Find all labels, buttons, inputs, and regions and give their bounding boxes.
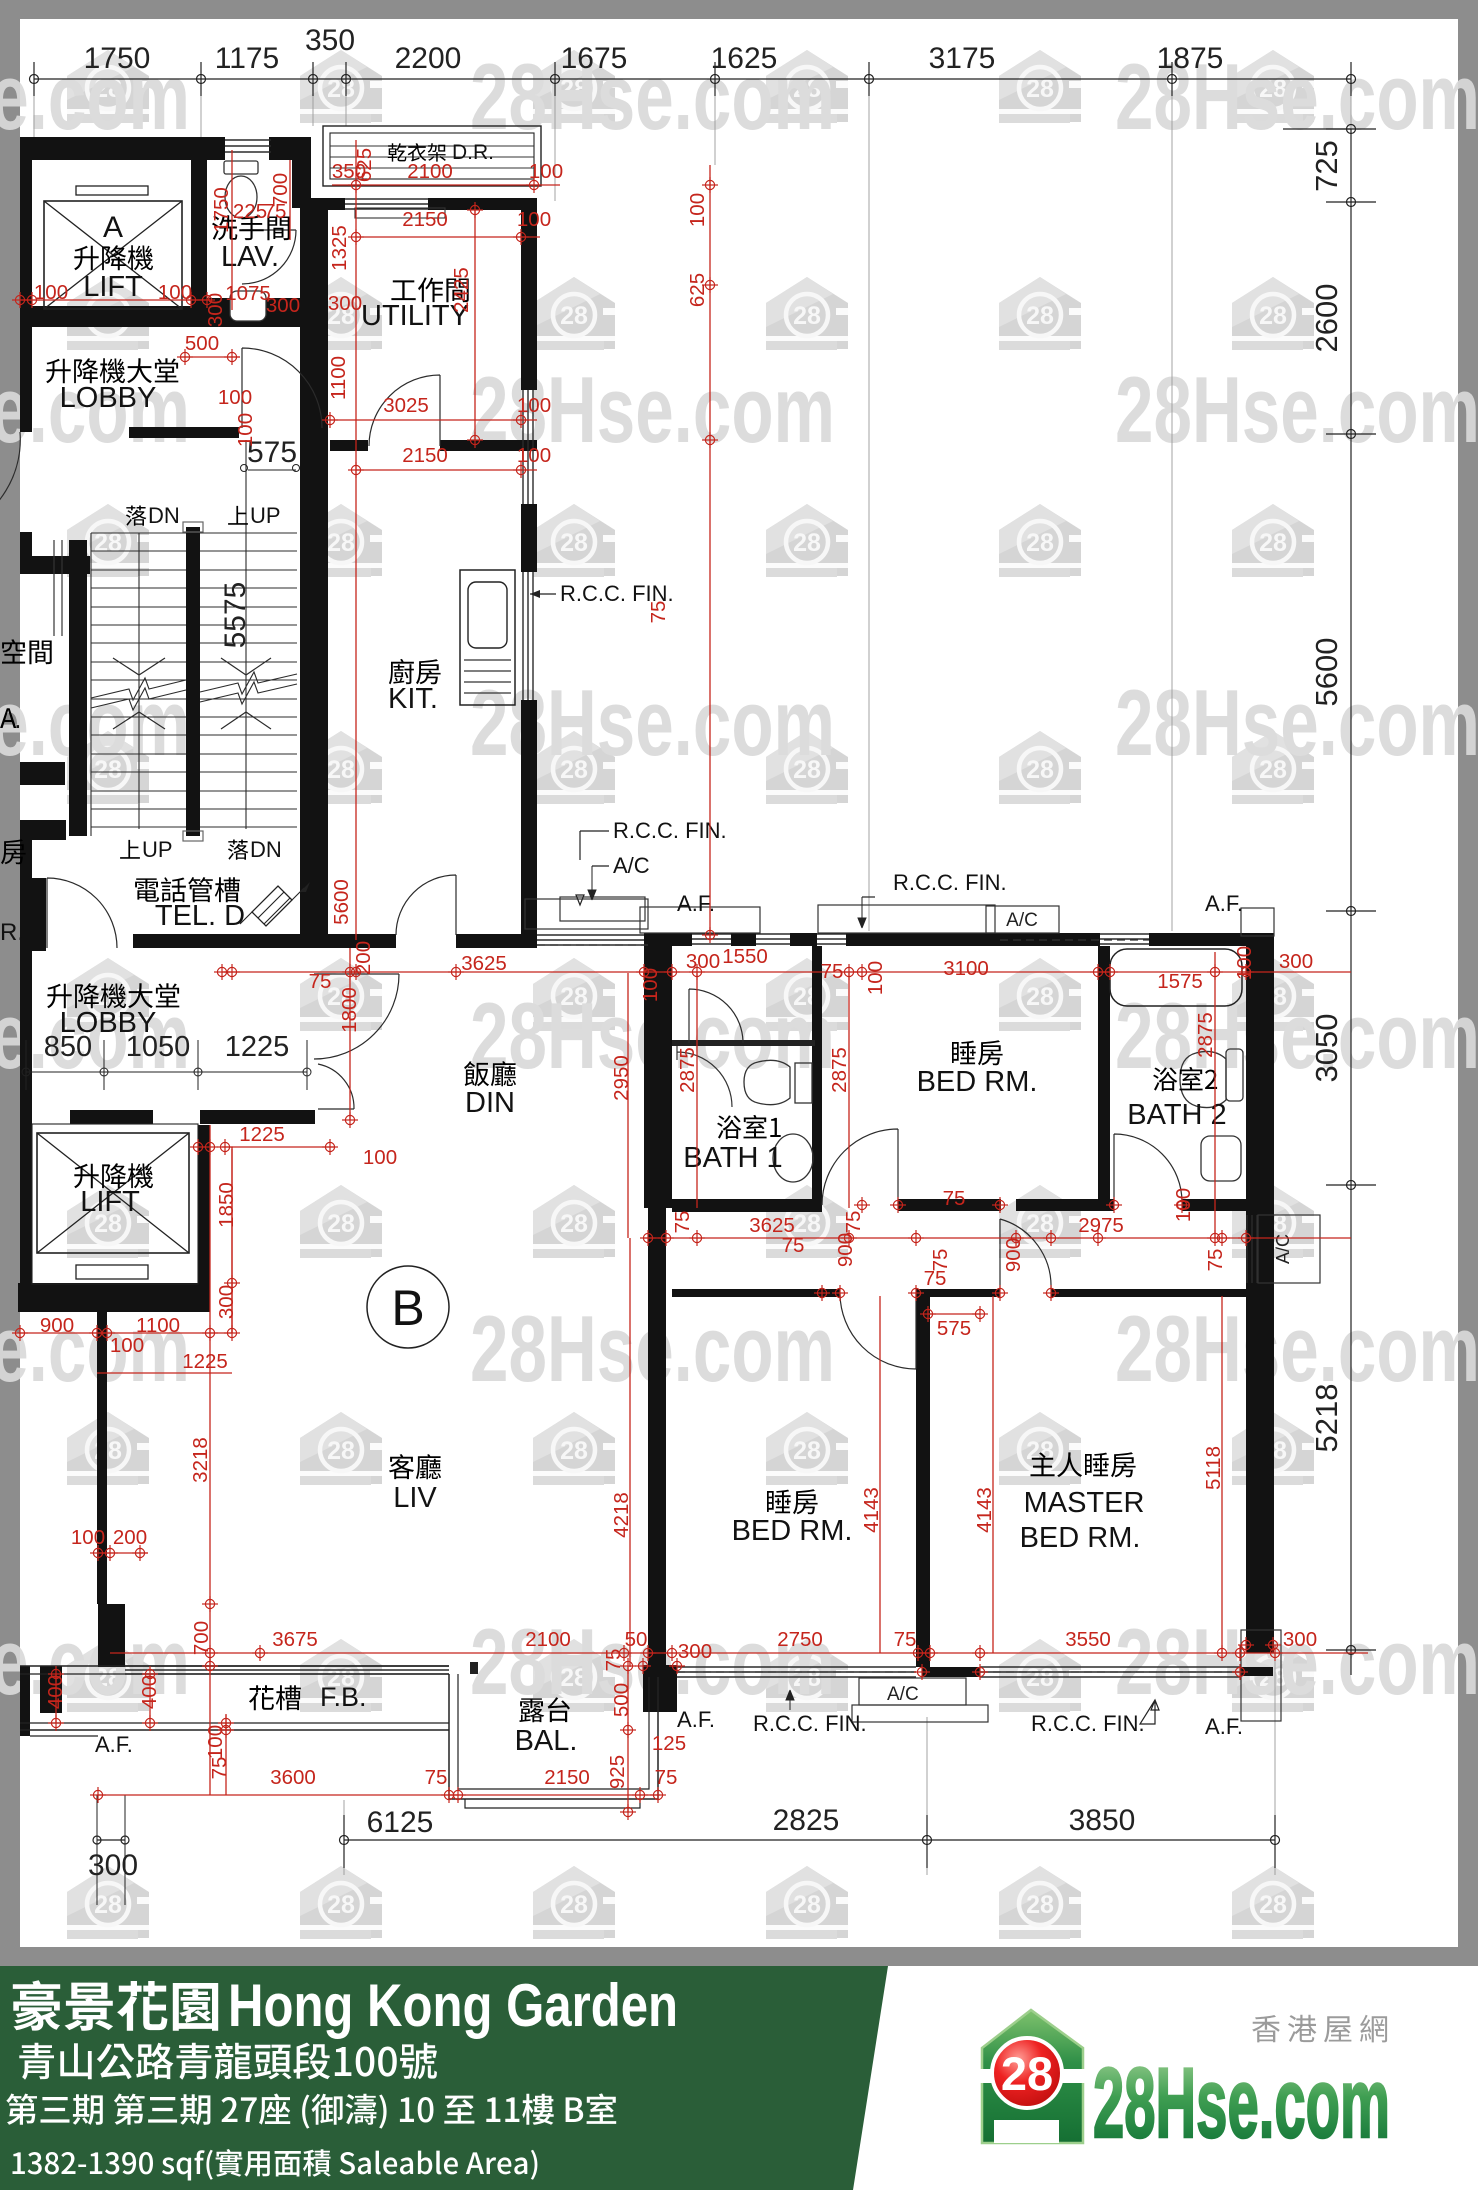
svg-text:100: 100	[234, 413, 257, 447]
svg-text:100: 100	[1172, 1188, 1195, 1222]
svg-text:300: 300	[328, 292, 362, 315]
svg-text:1625: 1625	[711, 42, 778, 75]
svg-text:100: 100	[639, 968, 662, 1002]
svg-text:A.F.: A.F.	[1205, 891, 1243, 916]
svg-text:28: 28	[1001, 2047, 1053, 2100]
svg-text:3218: 3218	[189, 1437, 212, 1483]
svg-text:6125: 6125	[367, 1806, 434, 1839]
svg-text:100: 100	[529, 160, 563, 183]
svg-text:75: 75	[655, 1766, 678, 1789]
svg-text:1175: 1175	[215, 42, 280, 75]
svg-text:A/C: A/C	[887, 1684, 919, 1705]
svg-text:A.F.: A.F.	[95, 1732, 133, 1757]
svg-text:75: 75	[425, 1766, 448, 1789]
svg-text:75: 75	[602, 1649, 625, 1672]
svg-text:3100: 3100	[943, 957, 989, 980]
svg-text:625: 625	[686, 273, 709, 307]
svg-text:900: 900	[40, 1314, 74, 1337]
svg-text:400: 400	[44, 1675, 67, 1709]
svg-text:625: 625	[353, 148, 376, 182]
svg-text:4218: 4218	[610, 1492, 633, 1538]
svg-text:75: 75	[671, 1211, 694, 1234]
svg-text:1075: 1075	[225, 282, 271, 305]
svg-text:LAV.: LAV.	[221, 241, 279, 273]
svg-text:1875: 1875	[1157, 42, 1224, 75]
svg-text:.: .	[14, 704, 22, 734]
svg-text:D.R.: D.R.	[452, 141, 494, 164]
svg-text:A: A	[103, 211, 123, 244]
svg-text:2200: 2200	[395, 42, 462, 75]
svg-text:DIN: DIN	[465, 1087, 515, 1119]
svg-text:100: 100	[218, 386, 252, 409]
svg-text:DN: DN	[148, 503, 180, 528]
svg-text:BED RM.: BED RM.	[917, 1066, 1038, 1098]
svg-text:2150: 2150	[402, 444, 448, 467]
svg-text:75: 75	[1204, 1249, 1227, 1272]
svg-text:925: 925	[606, 1755, 629, 1789]
svg-text:75: 75	[782, 1234, 805, 1257]
svg-text:575: 575	[937, 1317, 971, 1340]
svg-text:100: 100	[864, 961, 887, 995]
svg-text:A.F.: A.F.	[677, 1707, 715, 1732]
svg-text:2150: 2150	[402, 208, 448, 231]
svg-text:700: 700	[190, 1621, 213, 1655]
svg-text:2750: 2750	[777, 1628, 823, 1651]
svg-text:4143: 4143	[860, 1487, 883, 1533]
svg-text:28Hse.com: 28Hse.com	[1115, 670, 1478, 775]
svg-text:100: 100	[1233, 946, 1256, 980]
svg-text:200: 200	[352, 941, 375, 975]
svg-text:300: 300	[678, 1640, 712, 1663]
svg-text:F.B.: F.B.	[320, 1682, 367, 1712]
svg-text:1850: 1850	[215, 1182, 238, 1228]
svg-text:350: 350	[305, 24, 355, 57]
svg-text:1225: 1225	[225, 1031, 290, 1063]
svg-text:3850: 3850	[1069, 1804, 1136, 1837]
svg-text:50: 50	[625, 1628, 648, 1651]
svg-text:BATH 2: BATH 2	[1127, 1099, 1226, 1131]
svg-text:UP: UP	[142, 837, 173, 862]
svg-text:2975: 2975	[1078, 1214, 1124, 1237]
svg-text:LIV: LIV	[393, 1482, 437, 1514]
svg-text:A.F.: A.F.	[1205, 1714, 1243, 1739]
svg-text:4143: 4143	[973, 1487, 996, 1533]
svg-text:2875: 2875	[1194, 1012, 1217, 1058]
svg-text:75: 75	[264, 200, 287, 223]
svg-text:BAL.: BAL.	[515, 1725, 578, 1757]
svg-text:125: 125	[652, 1732, 686, 1755]
svg-text:2950: 2950	[610, 1055, 633, 1101]
svg-text:R.: R.	[0, 919, 24, 946]
svg-text:5575: 5575	[219, 582, 252, 649]
svg-text:A.F.: A.F.	[677, 891, 715, 916]
svg-text:75: 75	[943, 1187, 966, 1210]
svg-text:28Hse.com: 28Hse.com	[1115, 983, 1478, 1088]
svg-text:3025: 3025	[383, 394, 429, 417]
svg-text:725: 725	[1309, 140, 1344, 192]
svg-text:5600: 5600	[1309, 638, 1344, 707]
svg-text:28Hse.com: 28Hse.com	[1115, 1609, 1478, 1714]
svg-text:LIFT: LIFT	[83, 271, 143, 303]
svg-text:2875: 2875	[676, 1047, 699, 1093]
svg-text:5218: 5218	[1309, 1384, 1344, 1453]
svg-text:3050: 3050	[1309, 1014, 1344, 1083]
svg-text:2875: 2875	[828, 1047, 851, 1093]
svg-text:100: 100	[158, 281, 192, 304]
svg-text:R.C.C. FIN.: R.C.C. FIN.	[753, 1711, 867, 1736]
svg-text:2150: 2150	[544, 1766, 590, 1789]
svg-text:LIFT: LIFT	[80, 1186, 140, 1218]
svg-text:5118: 5118	[1202, 1446, 1225, 1490]
svg-text:100: 100	[517, 444, 551, 467]
svg-text:100: 100	[204, 1725, 227, 1759]
svg-text:1675: 1675	[561, 42, 628, 75]
svg-text:100: 100	[363, 1146, 397, 1169]
svg-text:300: 300	[1283, 1628, 1317, 1651]
svg-text:900: 900	[834, 1233, 857, 1267]
svg-text:75: 75	[208, 1757, 231, 1780]
svg-text:1325: 1325	[328, 225, 351, 271]
svg-text:300: 300	[204, 293, 227, 327]
svg-text:1800: 1800	[338, 987, 361, 1033]
svg-text:300: 300	[686, 950, 720, 973]
svg-text:UP: UP	[250, 503, 281, 528]
svg-text:2825: 2825	[773, 1804, 840, 1837]
svg-text:1750: 1750	[84, 42, 151, 75]
svg-text:2100: 2100	[525, 1628, 571, 1651]
svg-text:75: 75	[842, 1211, 865, 1234]
svg-text:100: 100	[517, 394, 551, 417]
svg-text:500: 500	[610, 1683, 633, 1717]
svg-text:300: 300	[266, 294, 300, 317]
svg-text:5600: 5600	[330, 879, 353, 925]
svg-text:28Hse.com: 28Hse.com	[1115, 357, 1478, 462]
svg-text:900: 900	[1002, 1238, 1025, 1272]
svg-text:3600: 3600	[270, 1766, 316, 1789]
svg-text:R.C.C. FIN.: R.C.C. FIN.	[1031, 1711, 1145, 1736]
svg-text:850: 850	[44, 1031, 92, 1063]
svg-text:BED RM.: BED RM.	[1020, 1522, 1141, 1554]
svg-text:2100: 2100	[407, 160, 453, 183]
svg-text:75: 75	[647, 601, 670, 624]
svg-text:DN: DN	[250, 837, 282, 862]
svg-text:75: 75	[894, 1628, 917, 1651]
svg-text:1550: 1550	[722, 945, 768, 968]
svg-text:1225: 1225	[239, 1123, 285, 1146]
svg-text:TEL. D: TEL. D	[155, 900, 245, 932]
svg-text:100: 100	[110, 1334, 144, 1357]
svg-text:A/C: A/C	[1006, 910, 1038, 931]
svg-text:75: 75	[924, 1267, 947, 1290]
svg-text:100: 100	[34, 281, 68, 304]
svg-text:28Hse.com: 28Hse.com	[1115, 1296, 1478, 1401]
svg-text:1225: 1225	[182, 1350, 228, 1373]
svg-text:3625: 3625	[461, 952, 507, 975]
svg-text:KIT.: KIT.	[388, 683, 438, 715]
svg-text:3675: 3675	[272, 1628, 318, 1651]
svg-text:3550: 3550	[1065, 1628, 1111, 1651]
svg-text:225: 225	[233, 200, 267, 223]
svg-text:1575: 1575	[1157, 970, 1203, 993]
svg-text:3175: 3175	[929, 42, 996, 75]
svg-text:1100: 1100	[327, 356, 350, 400]
svg-text:200: 200	[113, 1526, 147, 1549]
svg-text:100: 100	[71, 1526, 105, 1549]
svg-text:BED RM.: BED RM.	[732, 1515, 853, 1547]
svg-text:2425: 2425	[450, 267, 473, 313]
svg-text:28Hse.com: 28Hse.com	[1093, 2047, 1390, 2158]
svg-text:100: 100	[686, 193, 709, 227]
svg-text:300: 300	[1279, 950, 1313, 973]
svg-text:1750: 1750	[210, 187, 233, 233]
svg-text:Hong Kong Garden: Hong Kong Garden	[228, 1972, 678, 2039]
svg-text:300: 300	[215, 1285, 238, 1319]
svg-text:100: 100	[517, 208, 551, 231]
svg-text:300: 300	[88, 1849, 138, 1882]
svg-text:R.C.C. FIN.: R.C.C. FIN.	[893, 870, 1007, 895]
svg-text:2600: 2600	[1309, 284, 1344, 353]
svg-text:75: 75	[821, 960, 844, 983]
svg-text:B: B	[391, 1280, 424, 1336]
svg-text:BATH 1: BATH 1	[683, 1142, 782, 1174]
svg-text:A/C: A/C	[613, 853, 650, 878]
svg-text:1050: 1050	[126, 1031, 191, 1063]
svg-text:MASTER: MASTER	[1024, 1487, 1145, 1519]
svg-text:400: 400	[138, 1675, 161, 1709]
svg-text:LOBBY: LOBBY	[60, 382, 157, 414]
svg-text:500: 500	[185, 332, 219, 355]
svg-text:75: 75	[309, 970, 332, 993]
